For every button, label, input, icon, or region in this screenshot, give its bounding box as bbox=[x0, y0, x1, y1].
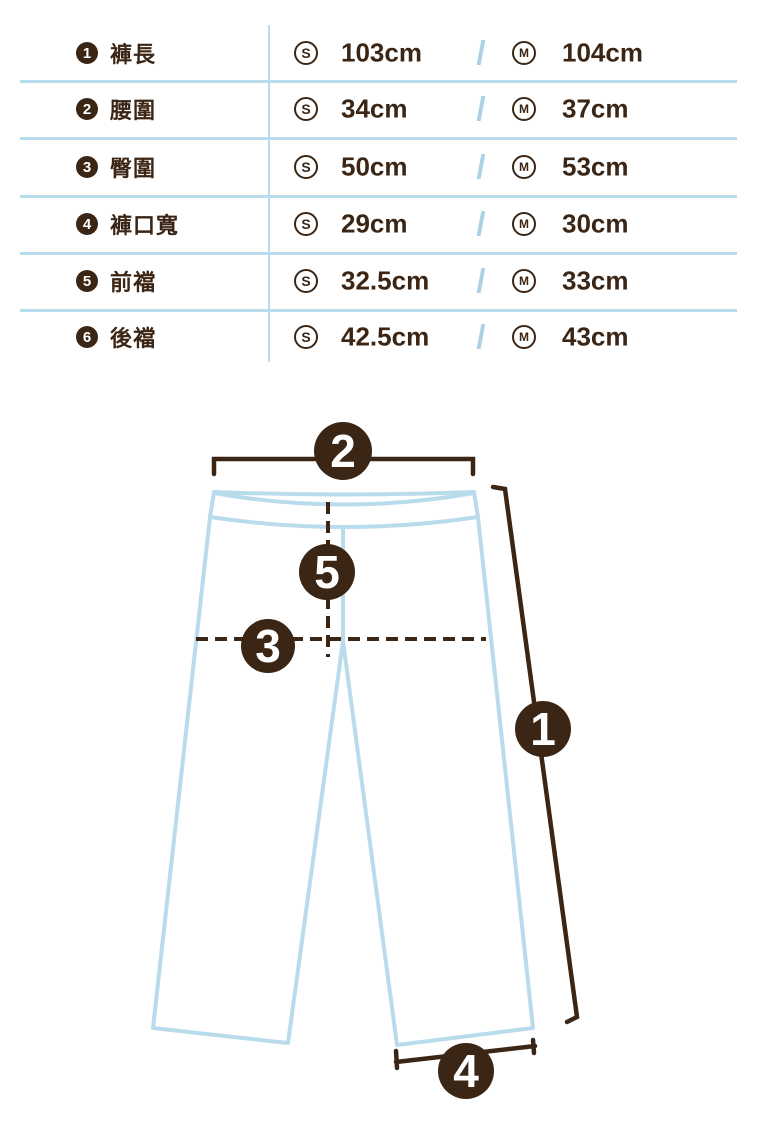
waistband-top-rim bbox=[214, 492, 474, 495]
pants-right-leg-outline bbox=[343, 517, 533, 1045]
size-chart-page: 1 褲長 S 103cm / M 104cm 2 腰圍 S 34cm / M 3… bbox=[0, 0, 764, 1130]
marker-number-3: 3 bbox=[255, 620, 281, 672]
pants-measurement-diagram: 2 5 3 1 4 bbox=[0, 0, 764, 1130]
marker-number-5: 5 bbox=[314, 546, 340, 598]
waistband-left-edge bbox=[210, 492, 214, 517]
marker-number-1: 1 bbox=[530, 703, 556, 755]
marker-number-4: 4 bbox=[453, 1045, 479, 1097]
waistband-right-edge bbox=[474, 492, 478, 517]
marker-number-2: 2 bbox=[330, 425, 356, 477]
